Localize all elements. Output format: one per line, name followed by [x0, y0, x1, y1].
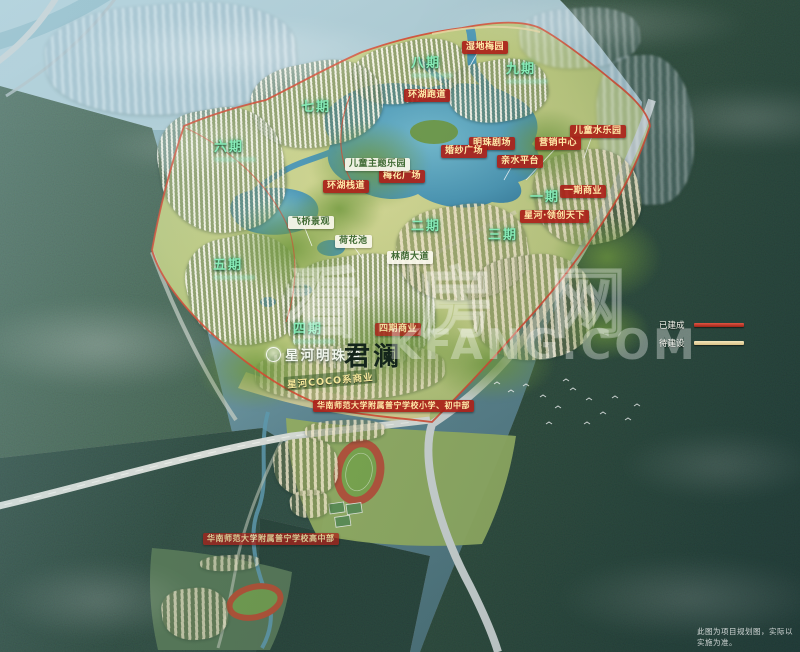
phase-map-label: 九期	[506, 62, 548, 84]
phase-map-label: 三期	[488, 228, 518, 244]
phase-map-label: 一期	[530, 190, 560, 206]
red-map-label: 星河·领创天下	[520, 210, 589, 223]
legend: 已建成 待建设	[659, 319, 744, 355]
phase-map-label: 八期	[411, 56, 453, 78]
red-map-label: 华南师范大学附属普宁学校小学、初中部	[313, 400, 474, 412]
logo-emblem-icon	[266, 347, 281, 362]
disclaimer-text: 此图为项目规划图，实际以实施为准。	[697, 626, 800, 648]
sub-brand-name: 君澜	[344, 336, 402, 373]
phase-map-label: 四期	[293, 322, 335, 344]
masterplan-screenshot: 湿地梅园环湖跑道儿童水乐园明珠剧场营销中心婚纱广场亲水平台梅花广场环湖栈道一期商…	[0, 0, 800, 652]
white-map-label: 儿童主题乐园	[345, 158, 410, 171]
red-map-label: 营销中心	[535, 137, 581, 150]
red-map-label: 环湖跑道	[404, 89, 450, 102]
red-map-label: 亲水平台	[497, 155, 543, 168]
phase-map-label: 七期	[301, 100, 331, 116]
phase-map-label: 六期	[214, 140, 256, 162]
legend-built-bar	[694, 323, 744, 327]
red-map-label: 环湖栈道	[323, 180, 369, 193]
white-map-label: 林荫大道	[387, 251, 433, 264]
red-map-label: 梅花广场	[379, 170, 425, 183]
white-map-label: 荷花池	[335, 235, 372, 248]
legend-row-built: 已建成	[659, 319, 744, 331]
red-map-label: 华南师范大学附属普宁学校高中部	[203, 533, 339, 545]
red-map-label: 湿地梅园	[462, 41, 508, 54]
red-map-label: 婚纱广场	[441, 145, 487, 158]
red-map-label: 四期商业	[375, 323, 421, 336]
legend-planned-bar	[694, 341, 744, 345]
red-map-label: 一期商业	[560, 185, 606, 198]
legend-built-label: 已建成	[659, 319, 685, 331]
legend-planned-label: 待建设	[659, 337, 685, 349]
legend-row-planned: 待建设	[659, 337, 744, 349]
white-map-label: 飞桥景观	[288, 216, 334, 229]
phase-map-label: 五期	[213, 258, 255, 280]
phase-map-label: 二期	[411, 219, 441, 235]
